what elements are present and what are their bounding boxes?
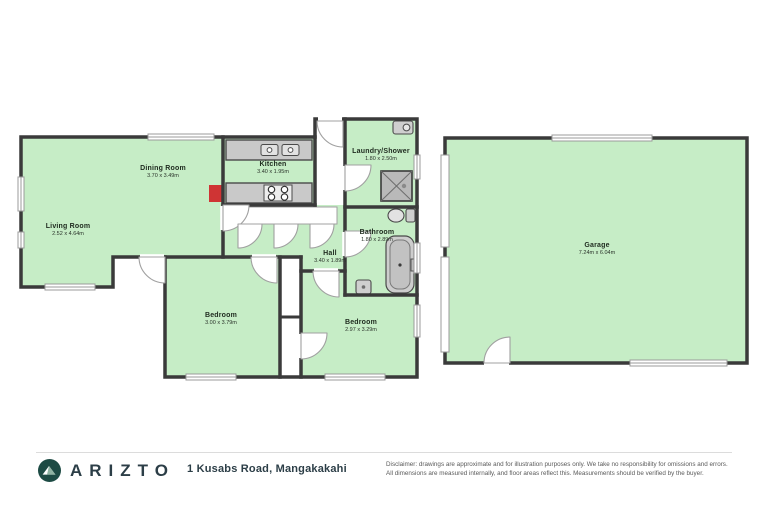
arizto-logo-icon <box>38 459 61 482</box>
window <box>45 284 95 290</box>
red-marker <box>209 185 223 202</box>
brand-name: ARIZTO <box>70 459 175 482</box>
basin-icon <box>356 280 371 294</box>
garage-door-panel <box>441 155 449 247</box>
window <box>414 155 420 179</box>
toilet-icon <box>388 209 415 222</box>
window <box>148 134 214 140</box>
kitchen-stove-icon <box>226 183 312 203</box>
brand: ARIZTO <box>38 459 175 482</box>
shower-icon <box>381 171 412 201</box>
laundry-tub-icon <box>393 121 413 134</box>
door-living-entry <box>139 257 165 283</box>
floor-plan-svg <box>0 0 768 512</box>
disclaimer-text: Disclaimer: drawings are approximate and… <box>386 460 732 479</box>
window <box>186 374 236 380</box>
bathtub-icon <box>386 236 416 293</box>
kitchen-counter-sink-icon <box>226 140 312 160</box>
window <box>18 232 24 248</box>
window <box>630 360 727 366</box>
room-shape-garage <box>445 138 747 363</box>
room-shapes <box>21 119 747 377</box>
window <box>414 305 420 337</box>
property-address: 1 Kusabs Road, Mangakakahi <box>187 463 347 475</box>
floor-plan-canvas: Living Room 2.52 x 4.64m Dining Room 3.7… <box>0 0 768 512</box>
window <box>18 177 24 211</box>
window <box>325 374 385 380</box>
footer: ARIZTO 1 Kusabs Road, Mangakakahi Discla… <box>0 453 768 512</box>
window <box>552 135 652 141</box>
garage-door-panel <box>441 257 449 352</box>
window <box>414 243 420 273</box>
